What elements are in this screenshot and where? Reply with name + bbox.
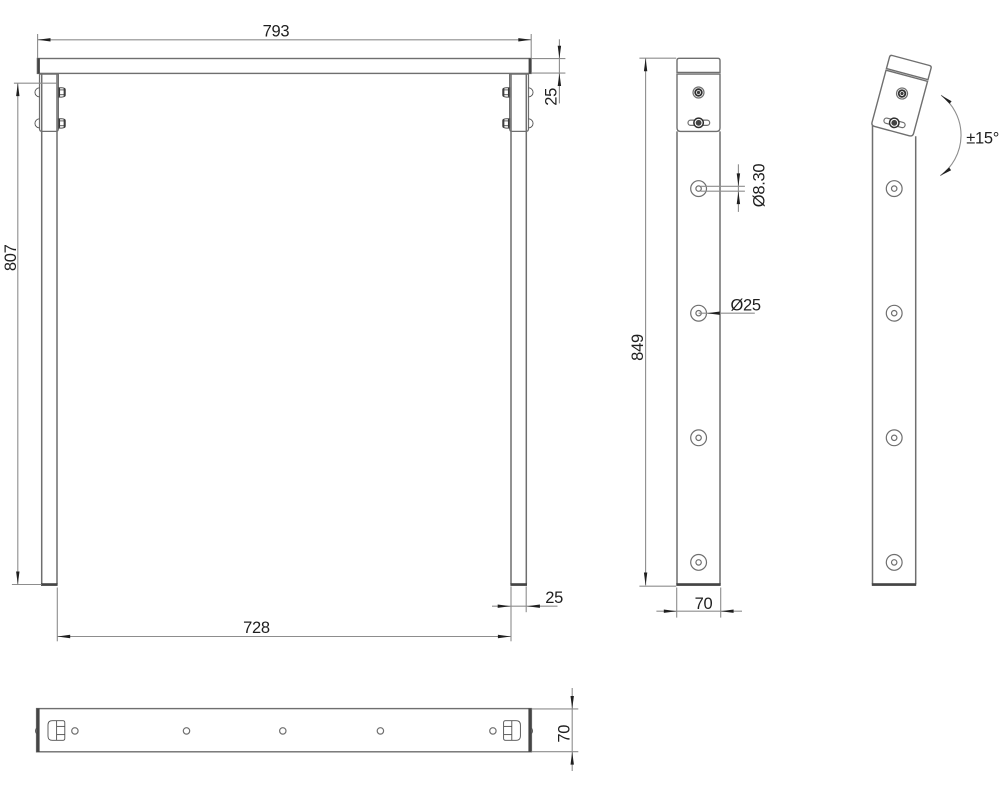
svg-text:Ø25: Ø25 [731,297,761,315]
svg-text:Ø8.30: Ø8.30 [751,164,769,208]
svg-text:793: 793 [263,22,290,40]
svg-text:25: 25 [543,88,561,106]
svg-text:±15°: ±15° [966,130,999,148]
svg-text:849: 849 [629,334,647,361]
svg-text:70: 70 [555,725,573,743]
svg-text:25: 25 [545,589,563,607]
svg-text:70: 70 [695,595,713,613]
svg-text:807: 807 [2,244,20,271]
svg-text:728: 728 [243,619,270,637]
